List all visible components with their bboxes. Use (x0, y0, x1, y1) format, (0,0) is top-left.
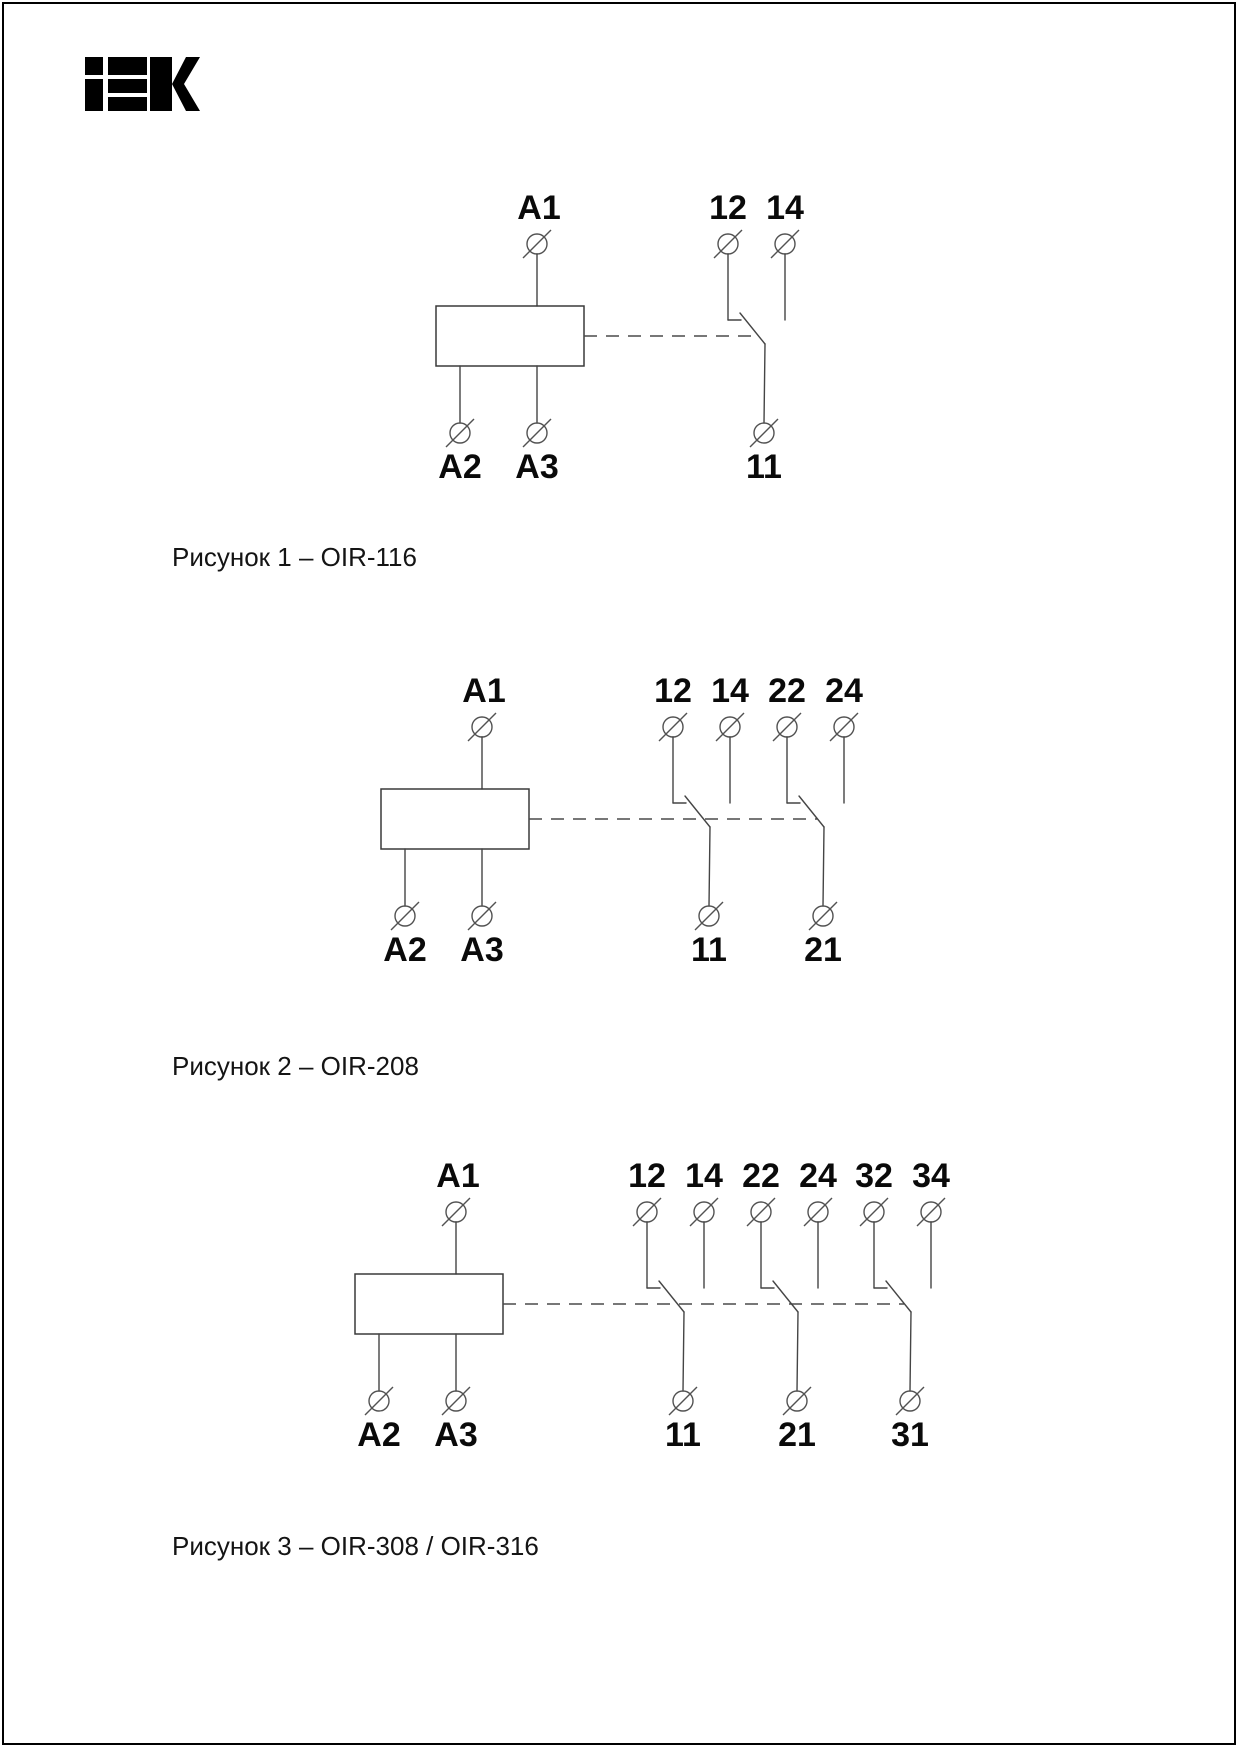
contact-terminal-label: 32 (855, 1157, 893, 1195)
contact-terminal-label: 11 (746, 448, 782, 486)
figure-3-caption: Рисунок 3 – OIR-308 / OIR-316 (172, 1530, 539, 1562)
contact-terminal-label: 11 (691, 931, 727, 969)
common-wire (910, 1312, 911, 1391)
contact-arm (740, 313, 765, 344)
contact-arm (886, 1281, 911, 1312)
contact-terminal-label: 31 (891, 1416, 929, 1454)
contact-terminal-label: 22 (768, 672, 806, 710)
wiring-diagrams: A1A2A3121411A1A2A3121411222421A1A2A31214… (0, 0, 1238, 1747)
contact-terminal-label: 14 (711, 672, 749, 710)
figure-2-caption: Рисунок 2 – OIR-208 (172, 1050, 419, 1082)
contact-terminal-label: 14 (766, 189, 804, 227)
contact-terminal-label: 22 (742, 1157, 780, 1195)
document-page: A1A2A3121411A1A2A3121411222421A1A2A31214… (0, 0, 1238, 1747)
contact-terminal-label: 34 (912, 1157, 950, 1195)
coil-terminal-label: A1 (462, 672, 505, 710)
coil-terminal-label: A1 (436, 1157, 479, 1195)
contact-terminal-label: 14 (685, 1157, 723, 1195)
coil-terminal-label: A2 (357, 1416, 400, 1454)
relay-coil-box (381, 789, 529, 849)
contact-arm (799, 796, 824, 827)
contact-arm (773, 1281, 798, 1312)
coil-terminal-label: A2 (383, 931, 426, 969)
coil-terminal-label: A3 (460, 931, 503, 969)
coil-terminal-label: A2 (438, 448, 481, 486)
contact-terminal-label: 24 (825, 672, 863, 710)
relay-coil-box (436, 306, 584, 366)
contact-arm (685, 796, 710, 827)
contact-terminal-label: 21 (804, 931, 842, 969)
common-wire (683, 1312, 684, 1391)
contact-arm (659, 1281, 684, 1312)
contact-terminal-label: 24 (799, 1157, 837, 1195)
contact-terminal-label: 12 (654, 672, 692, 710)
contact-terminal-label: 12 (628, 1157, 666, 1195)
contact-terminal-label: 21 (778, 1416, 816, 1454)
common-wire (823, 827, 824, 906)
relay-coil-box (355, 1274, 503, 1334)
common-wire (709, 827, 710, 906)
figure-1-caption: Рисунок 1 – OIR-116 (172, 541, 417, 573)
contact-terminal-label: 11 (665, 1416, 701, 1454)
coil-terminal-label: A3 (515, 448, 558, 486)
common-wire (764, 344, 765, 423)
coil-terminal-label: A3 (434, 1416, 477, 1454)
contact-terminal-label: 12 (709, 189, 747, 227)
common-wire (797, 1312, 798, 1391)
coil-terminal-label: A1 (517, 189, 560, 227)
